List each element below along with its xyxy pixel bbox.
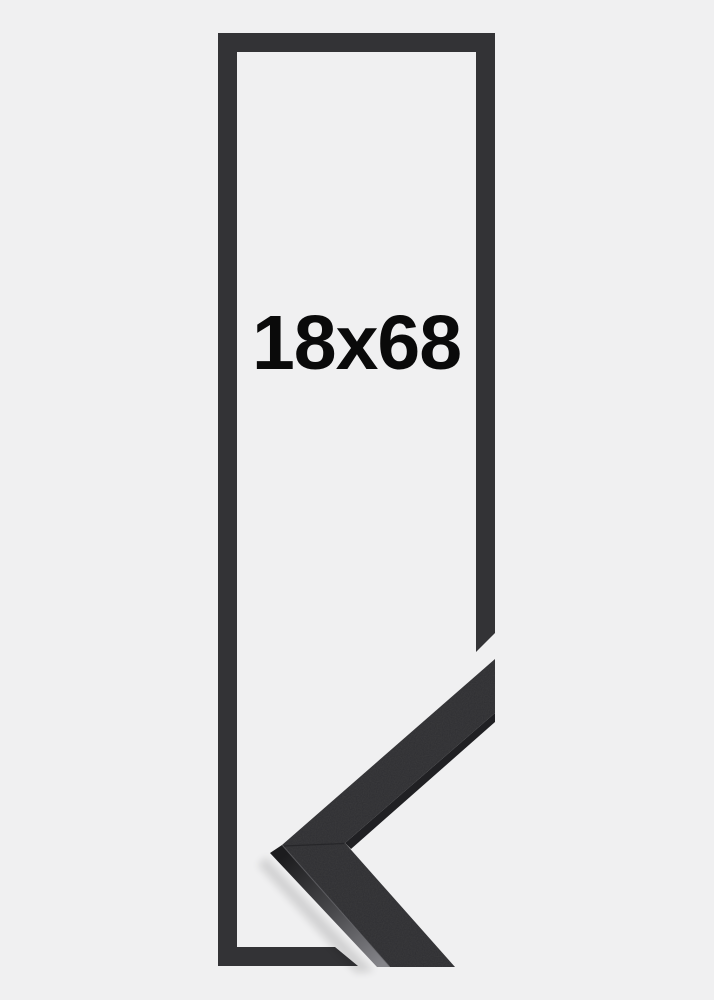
product-image: 18x68 bbox=[0, 0, 714, 1000]
frame-illustration bbox=[0, 0, 714, 1000]
size-label: 18x68 bbox=[218, 301, 495, 385]
background bbox=[0, 0, 714, 1000]
